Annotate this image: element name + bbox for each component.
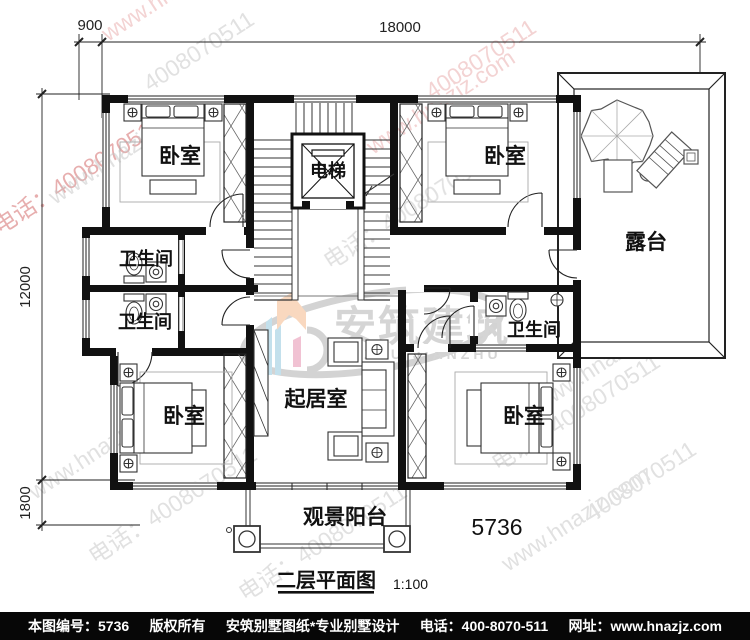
room-label-bath-lower: 卫生间: [118, 311, 172, 332]
terrace-table: [604, 160, 632, 192]
watermark-text: 4008070511: [581, 436, 701, 527]
dim-top-offset: 900: [77, 17, 102, 34]
room-label-bedroom-tl: 卧室: [159, 144, 201, 168]
room-label-balcony: 观景阳台: [303, 505, 387, 529]
plan-scale: 1:100: [393, 576, 428, 592]
room-label-bath-right: 卫生间: [507, 319, 561, 340]
footer-website: 网址：www.hnazjz.com: [568, 616, 722, 636]
room-label-living: 起居室: [284, 387, 348, 411]
room-label-bedroom-tr: 卧室: [484, 144, 526, 168]
footer-copyright: 版权所有: [150, 616, 206, 636]
watermark-text: 4008070511: [139, 6, 259, 97]
dim-left-height: 12000: [17, 266, 34, 308]
footer-plan-number: 本图编号：5736: [28, 616, 129, 636]
footer-phone: 电话：400-8070-511: [420, 616, 548, 636]
room-label-bath-upper: 卫生间: [119, 248, 173, 269]
room-label-terrace: 露台: [625, 230, 667, 254]
room-label-elevator: 电梯: [310, 160, 346, 181]
dim-top-width: 18000: [379, 19, 421, 36]
logo-blue-bar: [275, 325, 281, 375]
plan-title-underline: [278, 591, 374, 594]
floor-plan-page: www.hnazjz.com 4008070511 www.hnazjz.com…: [0, 0, 750, 640]
footer-company: 安筑别墅图纸*专业别墅设计: [226, 616, 399, 636]
footer-bar: 本图编号：5736 版权所有 安筑别墅图纸*专业别墅设计 电话：400-8070…: [0, 612, 750, 640]
room-label-bedroom-br: 卧室: [503, 404, 545, 428]
logo-gray-arc: [307, 330, 327, 370]
plan-title: 二层平面图: [276, 569, 376, 592]
dim-left-balcony: 1800: [17, 486, 34, 519]
room-label-bedroom-bl: 卧室: [163, 404, 205, 428]
floor-plan-drawing: www.hnazjz.com 4008070511 www.hnazjz.com…: [0, 0, 750, 612]
plan-number: 5736: [471, 514, 522, 540]
logo-pink-bar: [293, 336, 301, 367]
